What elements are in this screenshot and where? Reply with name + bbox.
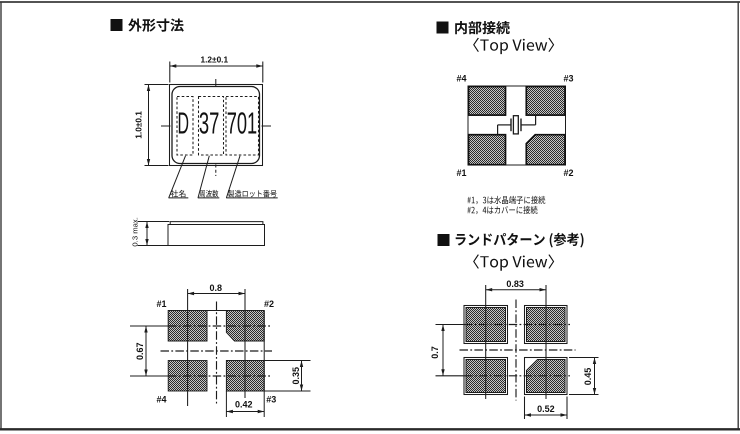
svg-text:0.8: 0.8 [209,283,222,293]
svg-text:D: D [178,106,190,141]
svg-text:#4: #4 [157,394,167,404]
svg-text:0.45: 0.45 [583,368,593,386]
svg-text:#3: #3 [266,394,276,404]
svg-text:0.83: 0.83 [506,279,524,289]
svg-text:#4: #4 [457,74,467,84]
svg-text:1.2±0.1: 1.2±0.1 [200,54,228,64]
svg-text:#1: #1 [157,299,167,309]
svg-text:0.52: 0.52 [537,404,555,414]
svg-text:37: 37 [199,106,220,141]
svg-text:0.42: 0.42 [235,400,253,410]
svg-text:#3: #3 [564,74,574,84]
svg-text:0.7: 0.7 [430,346,440,359]
svg-text:0.67: 0.67 [135,342,145,360]
svg-text:#2: #2 [264,299,274,309]
svg-text:1.0±0.1: 1.0±0.1 [134,111,144,139]
svg-text:#2: #2 [564,168,574,178]
svg-text:0.35: 0.35 [291,367,301,385]
svg-text:701: 701 [227,106,257,141]
svg-text:#1: #1 [457,168,467,178]
